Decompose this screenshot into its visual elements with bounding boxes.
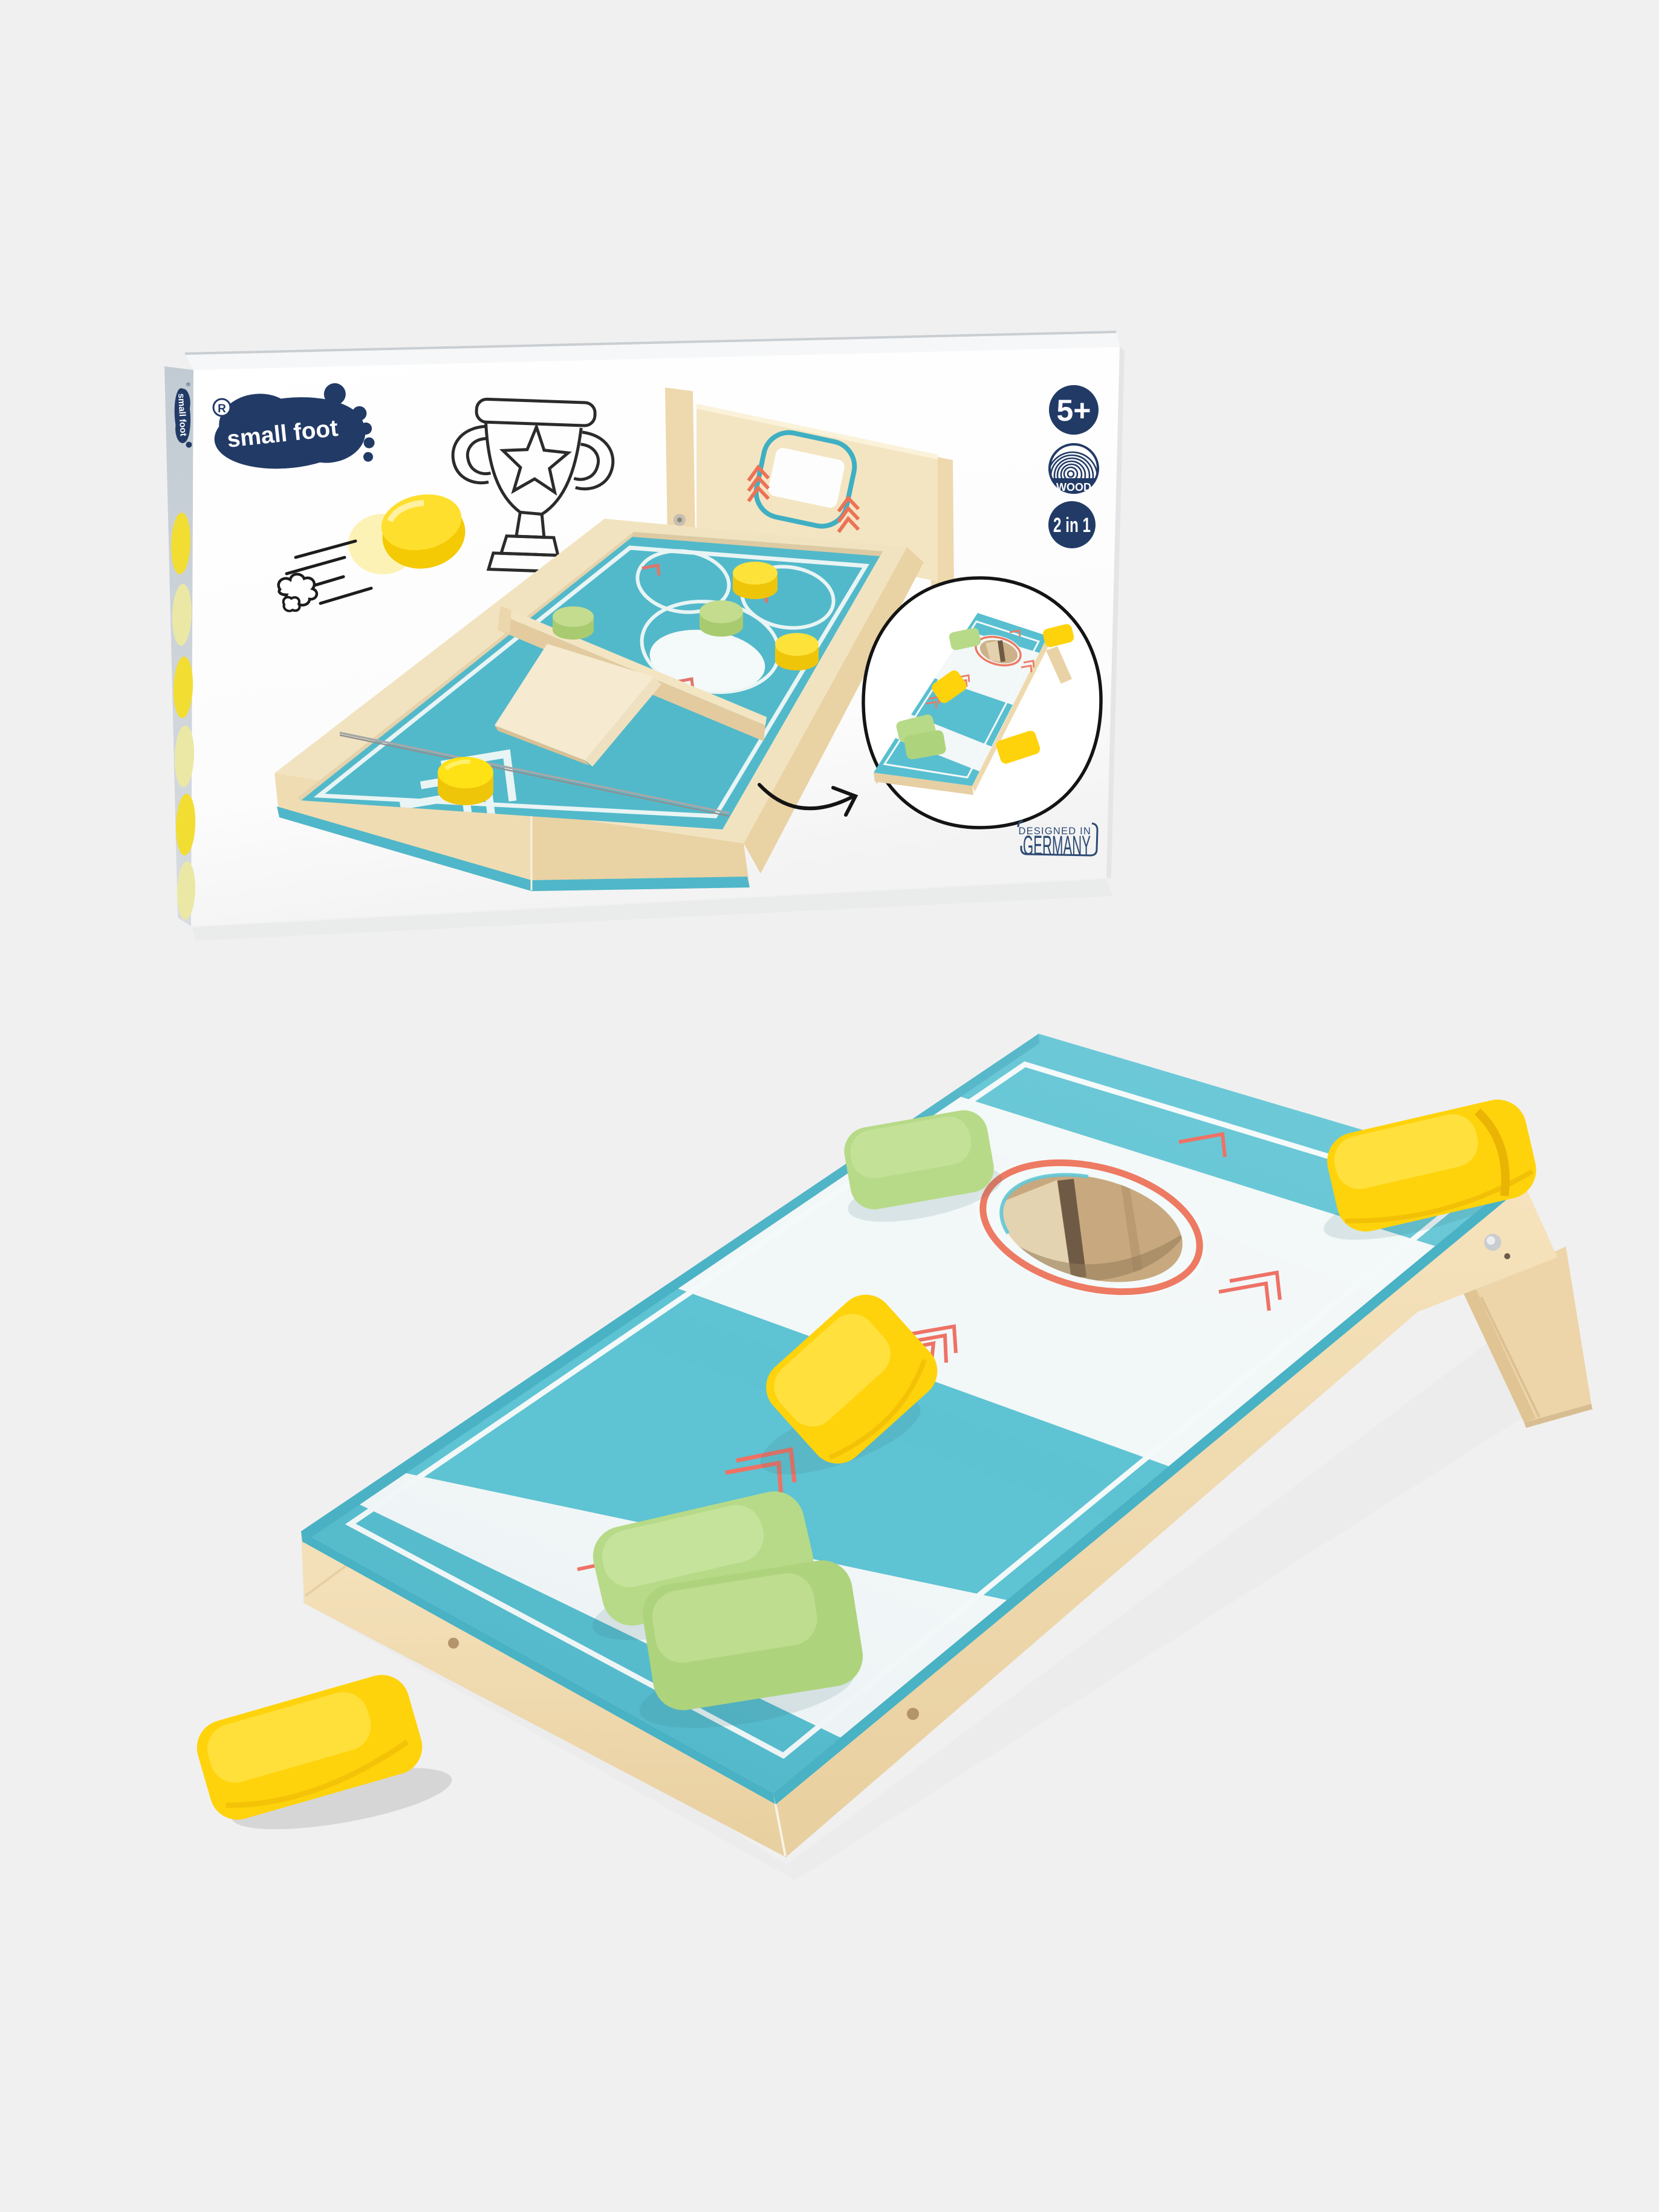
svg-text:5+: 5+ (1056, 394, 1091, 427)
svg-text:WOOD: WOOD (1056, 481, 1091, 493)
svg-text:®: ® (185, 382, 191, 387)
svg-text:R: R (218, 403, 226, 415)
svg-text:GERMANY: GERMANY (1023, 830, 1091, 861)
svg-text:2 in 1: 2 in 1 (1053, 514, 1091, 537)
